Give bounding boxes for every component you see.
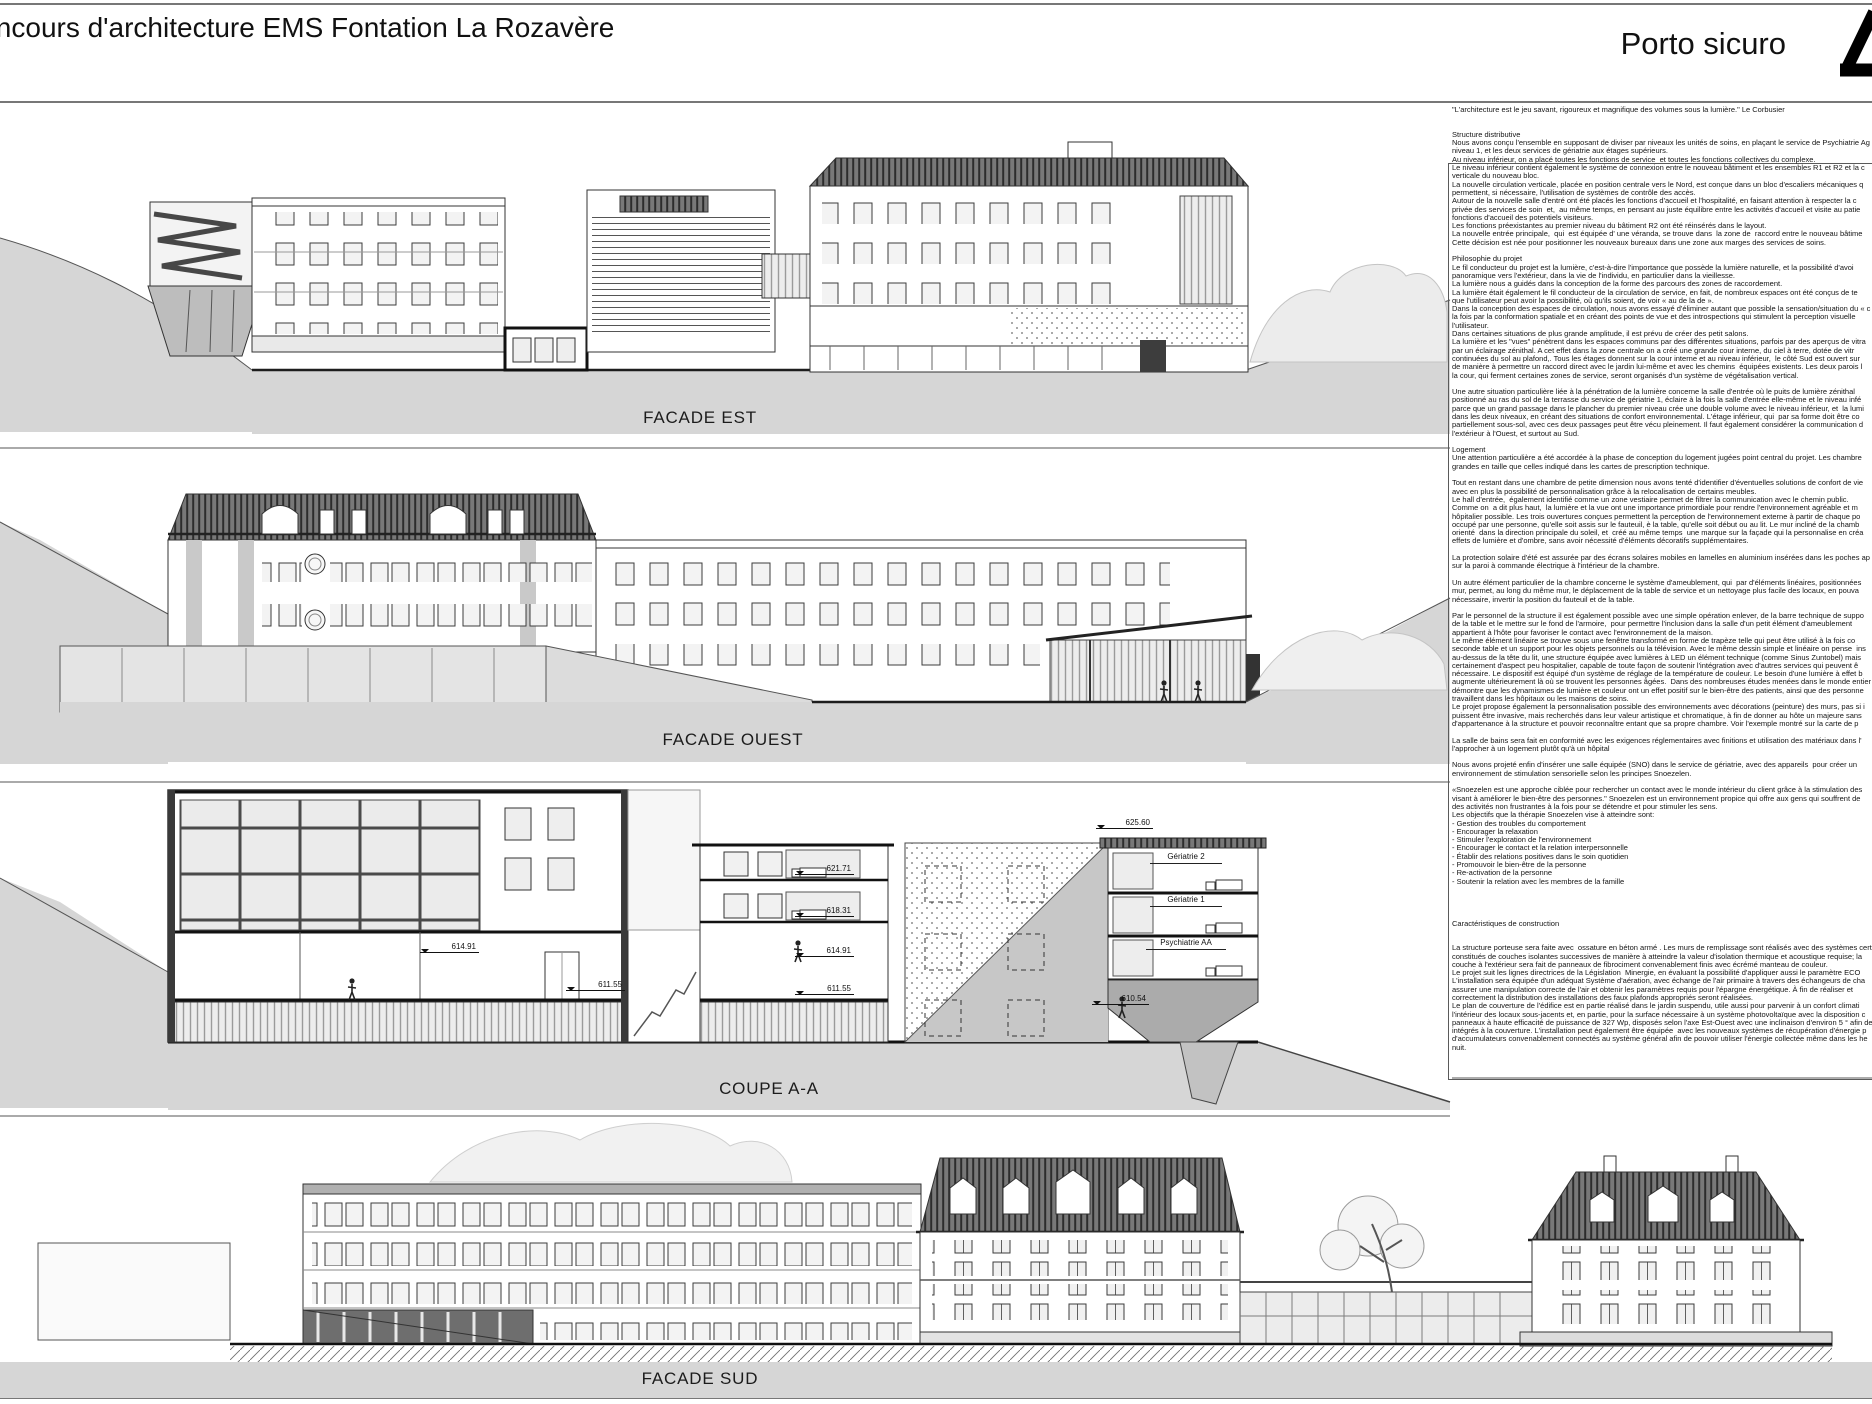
elevation-marker-l1-right: 614.91 xyxy=(795,946,854,957)
room-label-geriatrie-1: Gériatrie 1 xyxy=(1150,895,1222,907)
section-structure-distributive: Structure distributive Nous avons conçu … xyxy=(1452,131,1872,247)
section-heading: Caractéristiques de construction xyxy=(1452,920,1872,928)
elevation-marker-base: 610.54 xyxy=(1092,994,1149,1005)
corbusier-quote: "L'architecture est le jeu savant, rigou… xyxy=(1452,106,1872,114)
room-label-psychiatrie-aa: Psychiatrie AA xyxy=(1146,938,1226,950)
elevation-marker-roof: 625.60 xyxy=(1096,818,1153,829)
section-logement: Logement Une attention particulière a ét… xyxy=(1452,446,1872,886)
section-caracteristiques-de-construction: Caractéristiques de construction La stru… xyxy=(1452,920,1872,1052)
elevation-marker-l0-right: 611.55 xyxy=(795,984,854,995)
page-title: Concours d'architecture EMS Fontation La… xyxy=(0,12,614,44)
project-name: Porto sicuro xyxy=(1490,26,1786,62)
section-body: Le fil conducteur du projet est la lumiè… xyxy=(1452,264,1872,438)
elevation-marker-l2: 618.31 xyxy=(795,906,854,917)
elevation-marker-l0-left: 611.55 xyxy=(566,980,625,991)
facade-sud-label: FACADE SUD xyxy=(540,1369,860,1389)
facade-sud-drawing xyxy=(0,1123,1872,1398)
coupe-aa-drawing xyxy=(0,790,1450,1110)
competition-board: Concours d'architecture EMS Fontation La… xyxy=(0,0,1872,1404)
room-label-geriatrie-2: Gériatrie 2 xyxy=(1150,852,1222,864)
elevation-marker-l3: 621.71 xyxy=(795,864,854,875)
elevation-marker-l1-left: 614.91 xyxy=(420,942,479,953)
facade-ouest-label: FACADE OUEST xyxy=(573,730,893,750)
logo-triangle-icon xyxy=(1840,12,1872,70)
coupe-aa-label: COUPE A-A xyxy=(609,1079,929,1099)
project-description: "L'architecture est le jeu savant, rigou… xyxy=(1452,106,1872,1052)
facade-ouest-drawing xyxy=(0,494,1450,764)
facade-est-label: FACADE EST xyxy=(540,408,860,428)
section-body: La structure porteuse sera faite avec os… xyxy=(1452,944,1872,1052)
section-philosophie-du-projet: Philosophie du projet Le fil conducteur … xyxy=(1452,255,1872,438)
section-body: Nous avons conçu l'ensemble en supposant… xyxy=(1452,139,1872,247)
section-body: Une attention particulière a été accordé… xyxy=(1452,454,1872,885)
facade-est-drawing xyxy=(0,142,1450,434)
